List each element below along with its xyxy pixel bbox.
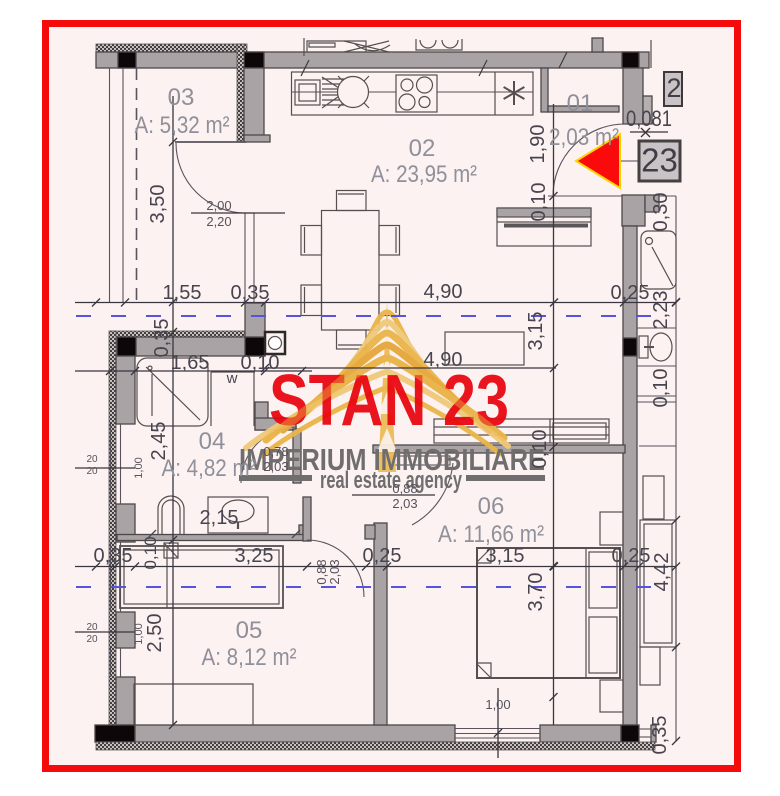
svg-text:2,03: 2,03: [263, 459, 288, 474]
svg-text:0,30: 0,30: [650, 193, 672, 232]
svg-text:2: 2: [666, 73, 681, 103]
svg-text:02: 02: [409, 135, 436, 162]
svg-text:2,50: 2,50: [144, 614, 166, 653]
svg-text:04: 04: [199, 428, 226, 455]
svg-text:4,90: 4,90: [424, 349, 463, 371]
svg-text:0,88: 0,88: [392, 481, 417, 496]
svg-text:0,25: 0,25: [363, 545, 402, 567]
svg-text:2,20: 2,20: [206, 214, 231, 229]
svg-text:3,15: 3,15: [525, 312, 547, 351]
svg-text:3,25: 3,25: [235, 545, 274, 567]
svg-text:2,03: 2,03: [392, 496, 417, 511]
svg-text:A: 5,32 m²: A: 5,32 m²: [135, 112, 230, 139]
svg-text:0,35: 0,35: [231, 282, 270, 304]
svg-text:2,45: 2,45: [148, 422, 170, 461]
svg-text:1,00: 1,00: [485, 697, 510, 712]
svg-text:23: 23: [641, 142, 678, 179]
svg-text:0,25: 0,25: [612, 545, 651, 567]
svg-text:0,10: 0,10: [529, 430, 551, 469]
svg-text:3,15: 3,15: [486, 545, 525, 567]
svg-text:A: 8,12 m²: A: 8,12 m²: [202, 644, 297, 671]
svg-text:03: 03: [168, 84, 195, 111]
svg-text:01: 01: [567, 90, 594, 117]
svg-text:0,35: 0,35: [94, 545, 133, 567]
svg-text:A: 11,66 m²: A: 11,66 m²: [438, 521, 544, 548]
svg-text:w: w: [226, 370, 238, 387]
svg-text:20: 20: [86, 634, 98, 645]
svg-text:4,42: 4,42: [651, 553, 673, 592]
svg-text:3,70: 3,70: [525, 573, 547, 612]
svg-text:2,00: 2,00: [206, 198, 231, 213]
svg-text:20: 20: [86, 466, 98, 477]
svg-text:0,10: 0,10: [650, 369, 672, 408]
svg-text:0,10: 0,10: [241, 352, 280, 374]
svg-text:3,50: 3,50: [147, 185, 169, 224]
svg-text:1,55: 1,55: [163, 282, 202, 304]
svg-text:real estate agency: real estate agency: [320, 467, 462, 494]
svg-text:0,10: 0,10: [141, 536, 160, 569]
svg-text:1,90: 1,90: [527, 125, 549, 164]
svg-text:2,03 m²: 2,03 m²: [549, 124, 619, 151]
svg-text:20: 20: [86, 622, 98, 633]
svg-text:0,78: 0,78: [263, 444, 288, 459]
svg-text:1,00: 1,00: [133, 457, 145, 478]
svg-text:A: 23,95 m²: A: 23,95 m²: [371, 161, 477, 188]
svg-text:A: 4,82 m²: A: 4,82 m²: [162, 455, 257, 482]
svg-text:2,23: 2,23: [650, 291, 672, 330]
svg-text:1,65: 1,65: [171, 352, 210, 374]
svg-text:06: 06: [478, 493, 505, 520]
svg-text:0,35: 0,35: [649, 716, 671, 755]
svg-text:4,90: 4,90: [424, 281, 463, 303]
svg-text:05: 05: [236, 617, 263, 644]
svg-text:20: 20: [86, 454, 98, 465]
svg-text:2,15: 2,15: [200, 507, 239, 529]
svg-text:0,081: 0,081: [626, 106, 672, 131]
svg-text:0,35: 0,35: [151, 319, 173, 358]
svg-text:0,10: 0,10: [528, 183, 550, 222]
svg-text:0,25: 0,25: [611, 282, 650, 304]
svg-text:STAN 23: STAN 23: [269, 361, 509, 441]
svg-text:1,00: 1,00: [133, 623, 145, 644]
svg-text:2,03: 2,03: [327, 559, 342, 584]
